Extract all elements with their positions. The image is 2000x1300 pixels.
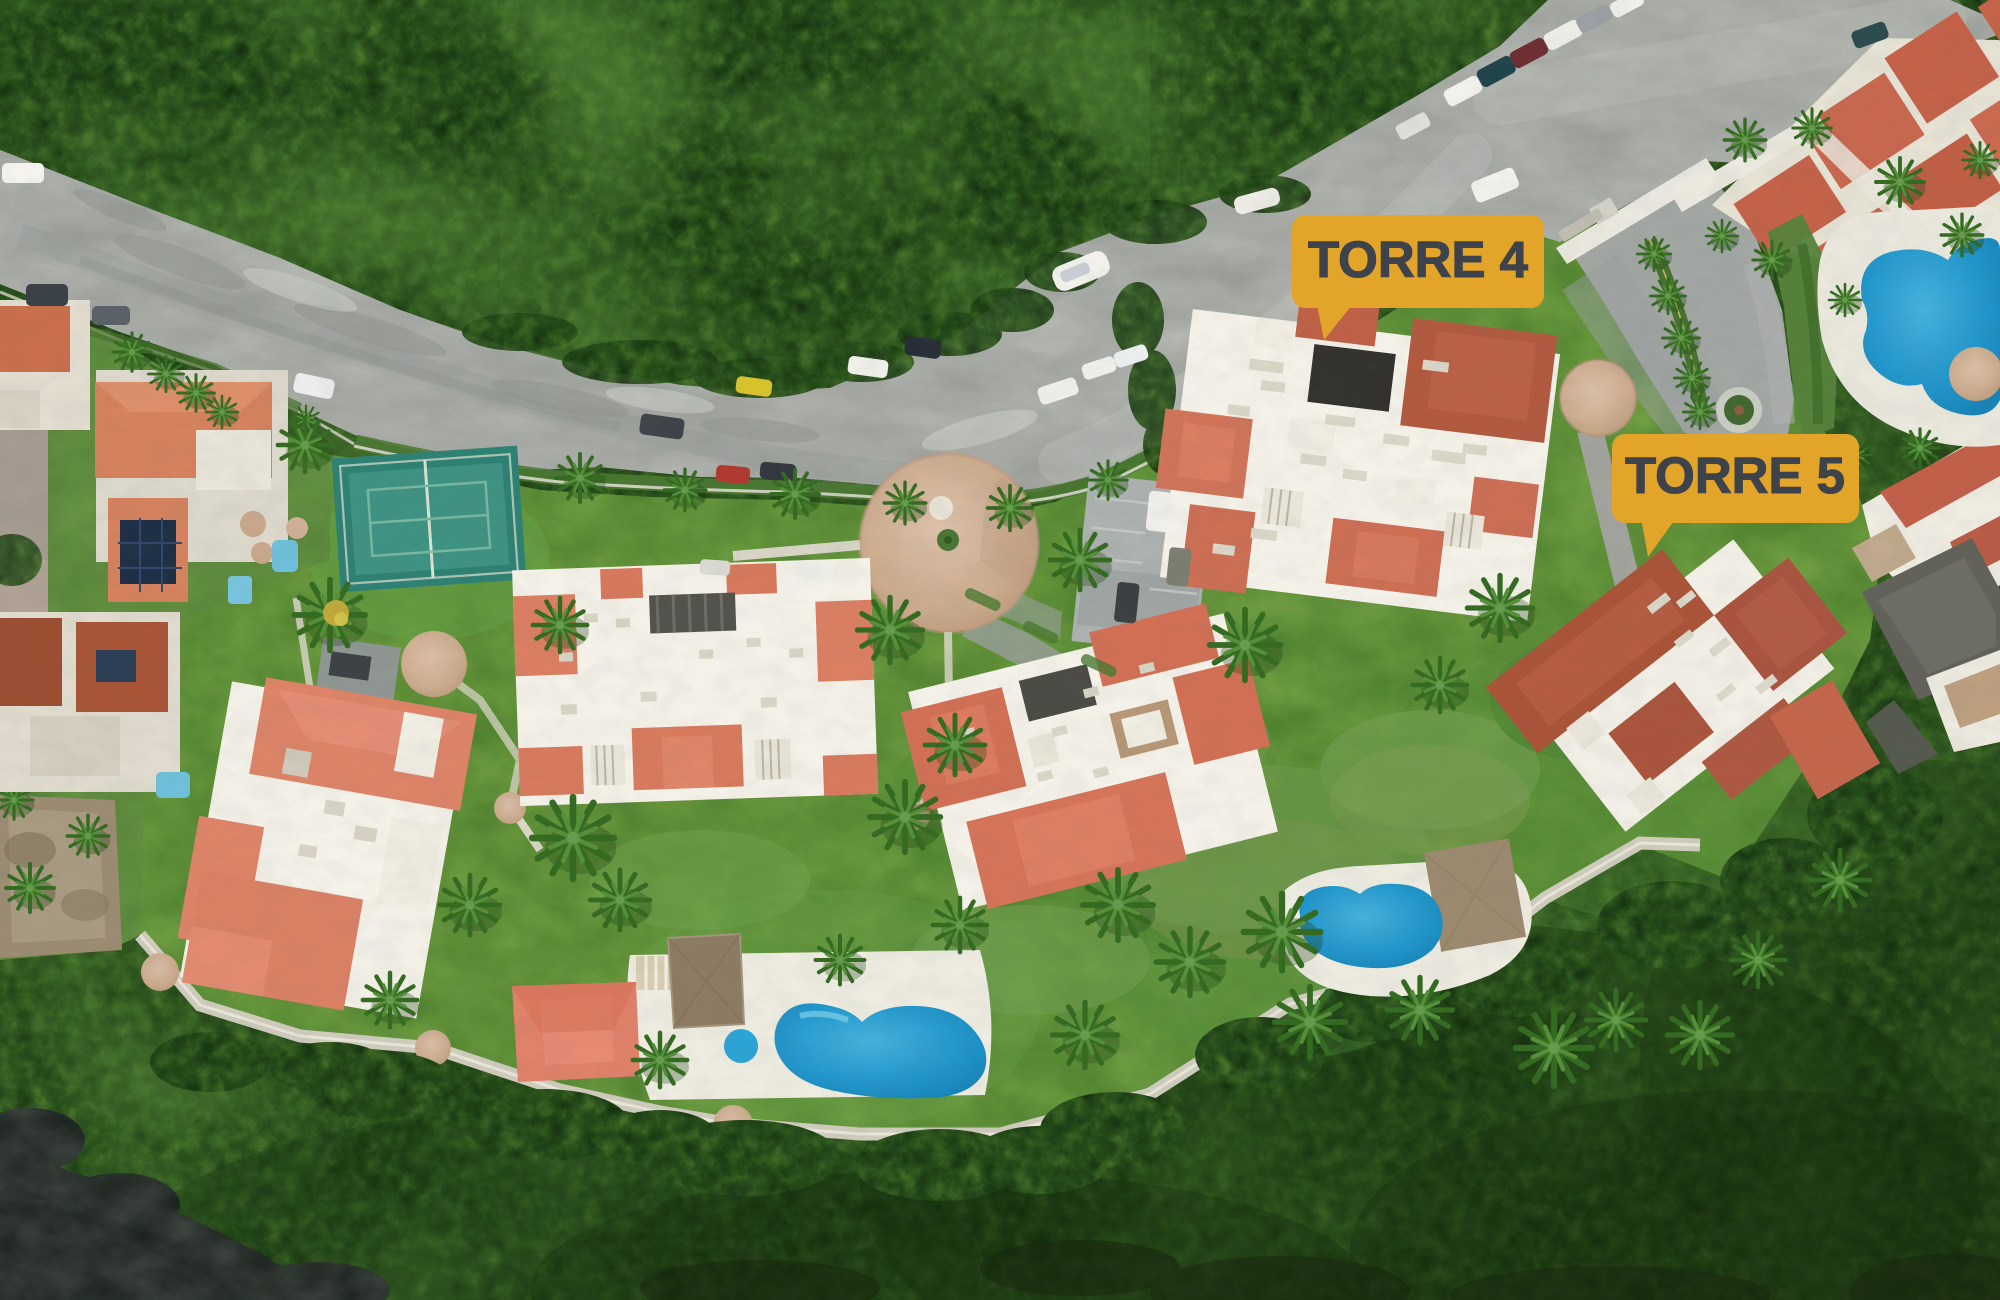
svg-text:TORRE 5: TORRE 5 [1625,447,1845,504]
svg-text:TORRE 4: TORRE 4 [1308,231,1529,288]
